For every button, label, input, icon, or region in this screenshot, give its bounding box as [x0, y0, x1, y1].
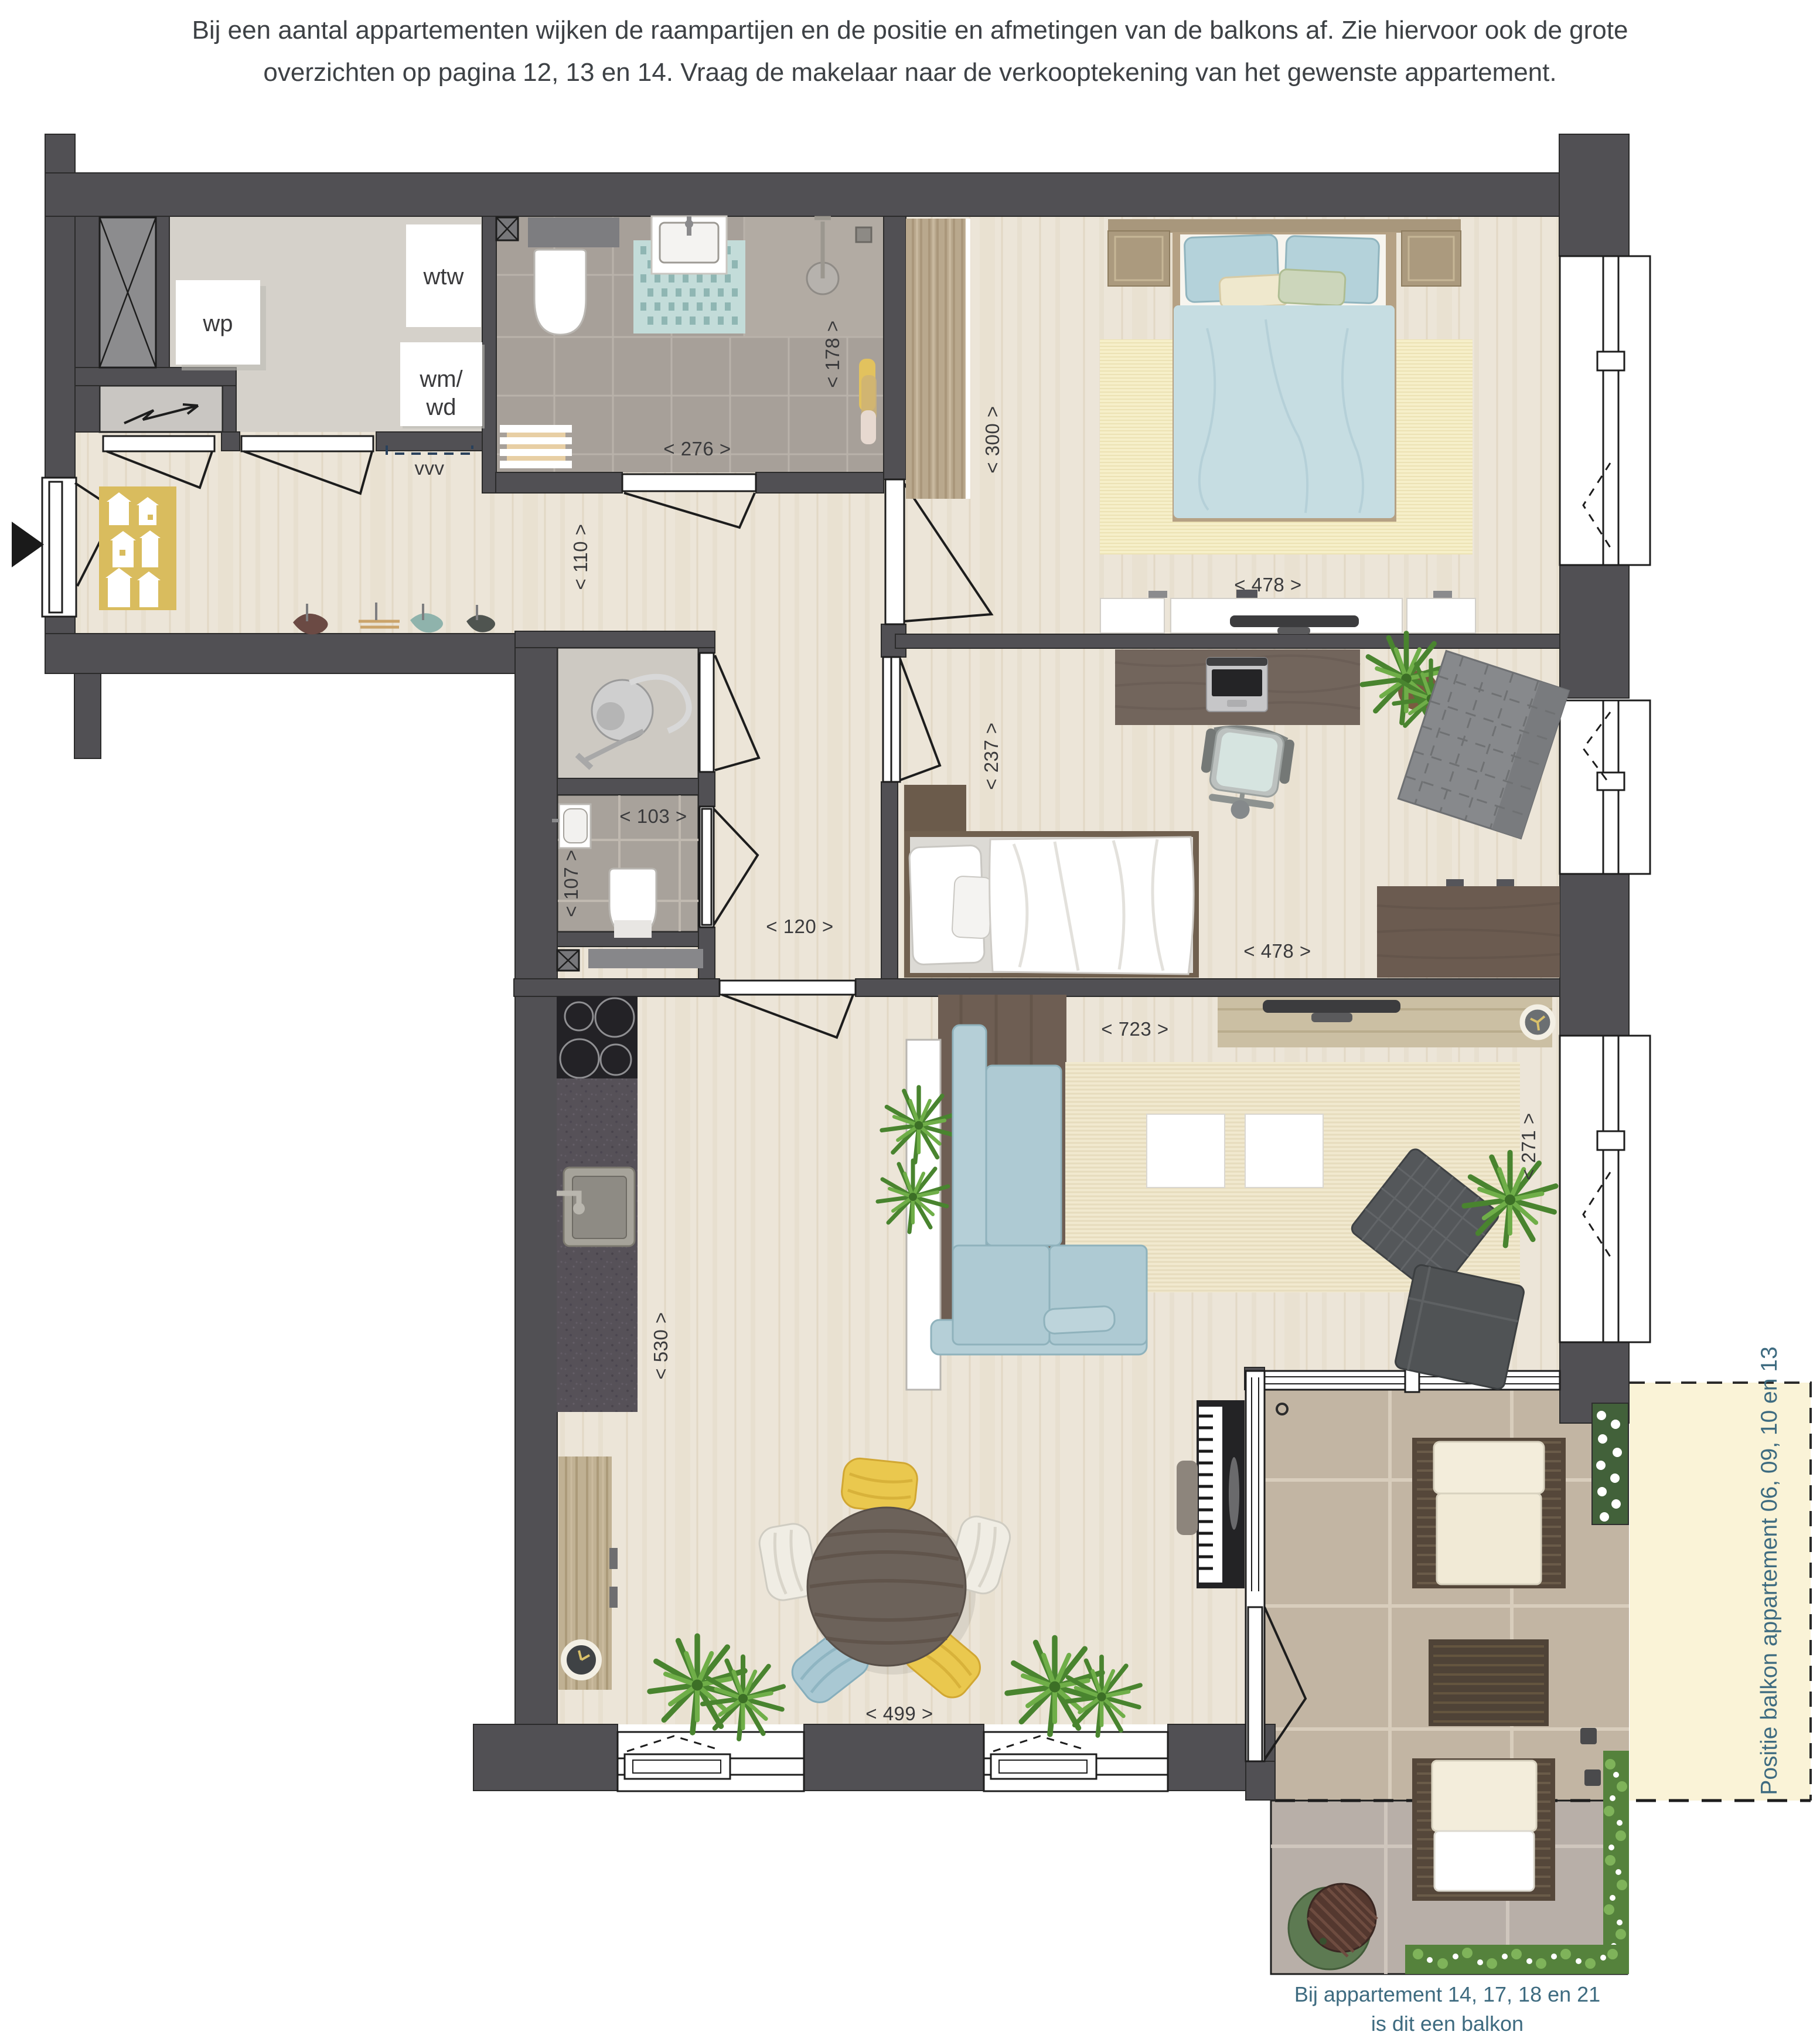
svg-text:< 178 >: < 178 > — [822, 320, 843, 387]
svg-text:is dit een balkon: is dit een balkon — [1371, 2012, 1524, 2035]
svg-text:< 478 >: < 478 > — [1234, 574, 1301, 595]
svg-text:< 237 >: < 237 > — [980, 722, 1002, 790]
svg-text:< 103 >: < 103 > — [619, 805, 687, 827]
svg-text:< 107 >: < 107 > — [560, 849, 582, 917]
svg-text:< 110 >: < 110 > — [570, 524, 591, 590]
svg-text:wp: wp — [202, 311, 233, 336]
svg-text:wd: wd — [425, 394, 456, 420]
svg-text:< 271 >: < 271 > — [1518, 1112, 1539, 1180]
svg-text:< 530 >: < 530 > — [650, 1312, 672, 1379]
svg-text:Bij appartement 14, 17, 18 en: Bij appartement 14, 17, 18 en 21 — [1294, 1982, 1600, 2006]
svg-text:Bij een aantal appartementen w: Bij een aantal appartementen wijken de r… — [192, 16, 1628, 45]
svg-text:Positie balkon appartement 06,: Positie balkon appartement 06, 09, 10 en… — [1757, 1346, 1782, 1795]
svg-text:wm/: wm/ — [419, 366, 463, 392]
svg-text:overzichten op pagina 12, 13 e: overzichten op pagina 12, 13 en 14. Vraa… — [263, 58, 1556, 87]
svg-text:< 120 >: < 120 > — [766, 916, 833, 937]
svg-text:< 276 >: < 276 > — [663, 438, 731, 460]
svg-text:wtw: wtw — [423, 264, 464, 290]
svg-text:vvv: vvv — [415, 457, 445, 479]
svg-text:< 499 >: < 499 > — [865, 1703, 933, 1724]
svg-text:< 478 >: < 478 > — [1243, 940, 1311, 962]
svg-text:< 300 >: < 300 > — [981, 406, 1003, 473]
svg-text:< 723 >: < 723 > — [1101, 1018, 1168, 1040]
